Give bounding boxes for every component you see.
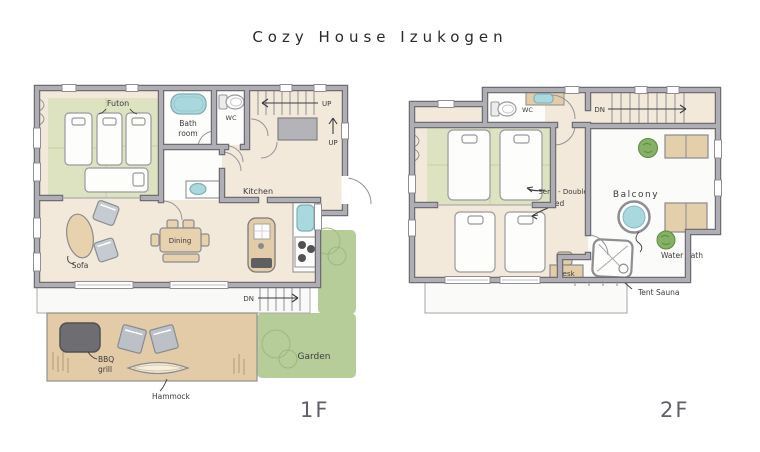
stove — [295, 237, 318, 267]
window-mark — [34, 128, 41, 148]
dining-chair — [183, 220, 194, 228]
floorplan-canvas: Cozy House Izukogen Garden DN — [0, 0, 760, 452]
burner-icon — [298, 254, 306, 262]
futon-bed-horizontal — [85, 168, 148, 192]
veranda-1f: DN — [37, 285, 310, 313]
window-mark — [438, 101, 454, 108]
fridge — [248, 218, 275, 272]
window-mark — [715, 180, 722, 196]
dining-chair — [151, 234, 159, 246]
up-entry-label: UP — [328, 139, 337, 147]
burner-icon — [307, 245, 315, 253]
window-mark — [409, 175, 416, 193]
bench — [665, 135, 708, 158]
floor2-label: 2F — [660, 398, 689, 422]
floor1-plan-svg: Garden DN — [30, 68, 375, 408]
veranda-2f — [425, 280, 627, 313]
toilet-icon — [219, 95, 244, 109]
bbq-label-line2: grill — [98, 365, 112, 374]
dining-chair — [167, 220, 178, 228]
bathroom-label-line2: room — [178, 129, 197, 138]
garden-patch — [318, 230, 356, 314]
dining-chair — [201, 234, 209, 246]
window-mark — [409, 220, 416, 236]
deck-chair — [117, 324, 146, 353]
floor2-plan-svg: Desk WC — [405, 80, 735, 330]
up-stairs-label: UP — [322, 100, 331, 108]
semi-double-label-line1: Semi - Double — [538, 188, 587, 196]
bed — [455, 212, 495, 272]
washbasin-2f — [526, 92, 564, 105]
sofa-label: Sofa — [72, 261, 89, 270]
futon-room: Futon — [48, 98, 160, 198]
bed — [505, 212, 545, 272]
tent-sauna-label: Tent Sauna — [637, 288, 679, 297]
window-mark — [280, 85, 292, 92]
washbasin-room — [163, 147, 222, 200]
washbasin-sink — [534, 94, 553, 103]
tent-sauna — [592, 239, 633, 278]
stair-landing — [278, 118, 317, 140]
toilet-icon — [491, 102, 516, 116]
window-mark — [34, 163, 41, 181]
window-mark — [635, 87, 647, 94]
burner-icon — [298, 241, 306, 249]
water-bath-label: Water Bath — [661, 251, 703, 260]
hammock-label: Hammock — [152, 392, 191, 401]
entrance-opening — [342, 176, 349, 204]
window-mark — [315, 204, 322, 230]
garden-label: Garden — [298, 352, 331, 362]
window-mark — [715, 140, 722, 158]
window-mark — [565, 87, 579, 94]
window-mark — [342, 123, 349, 139]
futon-bed — [65, 113, 92, 165]
bathroom-label-line1: Bath — [179, 119, 197, 128]
deck-area: BBQ grill Hammock — [47, 313, 257, 401]
washbasin-sink — [190, 184, 206, 195]
window-mark — [126, 85, 138, 92]
bench — [665, 203, 707, 232]
bbq-label-line1: BBQ — [98, 355, 114, 364]
balcony-label: Balcony — [613, 190, 659, 200]
wc-label: WC — [522, 106, 533, 114]
bathroom: Bath room — [163, 90, 214, 147]
wc-room-1f: WC — [215, 90, 247, 145]
tatami-bedroom — [427, 125, 553, 205]
garden-patch — [257, 313, 356, 378]
page-title: Cozy House Izukogen — [0, 28, 760, 46]
futon-label: Futon — [107, 99, 129, 108]
window-mark — [62, 85, 76, 92]
plant-icon — [657, 231, 675, 249]
bbq-grill — [60, 323, 100, 352]
bed — [500, 130, 542, 200]
kitchen-label: Kitchen — [243, 187, 273, 196]
window-mark — [667, 87, 679, 94]
veranda-floor — [37, 285, 310, 313]
dn-label: DN — [243, 295, 254, 303]
kitchen-sink — [297, 205, 314, 231]
window-mark — [34, 218, 41, 238]
entrance-door-arc — [345, 178, 371, 204]
window-mark — [34, 253, 41, 271]
futon-bed — [126, 113, 151, 165]
dining-label: Dining — [169, 237, 192, 245]
plant-icon — [639, 139, 658, 158]
floor1-label: 1F — [300, 398, 329, 422]
deck-chair — [149, 324, 178, 353]
water-bath — [619, 202, 650, 233]
dn-label: DN — [594, 106, 605, 114]
futon-bed — [97, 113, 122, 165]
wc-label: WC — [226, 114, 237, 122]
window-mark — [314, 85, 326, 92]
dining-bench — [163, 254, 199, 262]
bed — [448, 130, 490, 200]
